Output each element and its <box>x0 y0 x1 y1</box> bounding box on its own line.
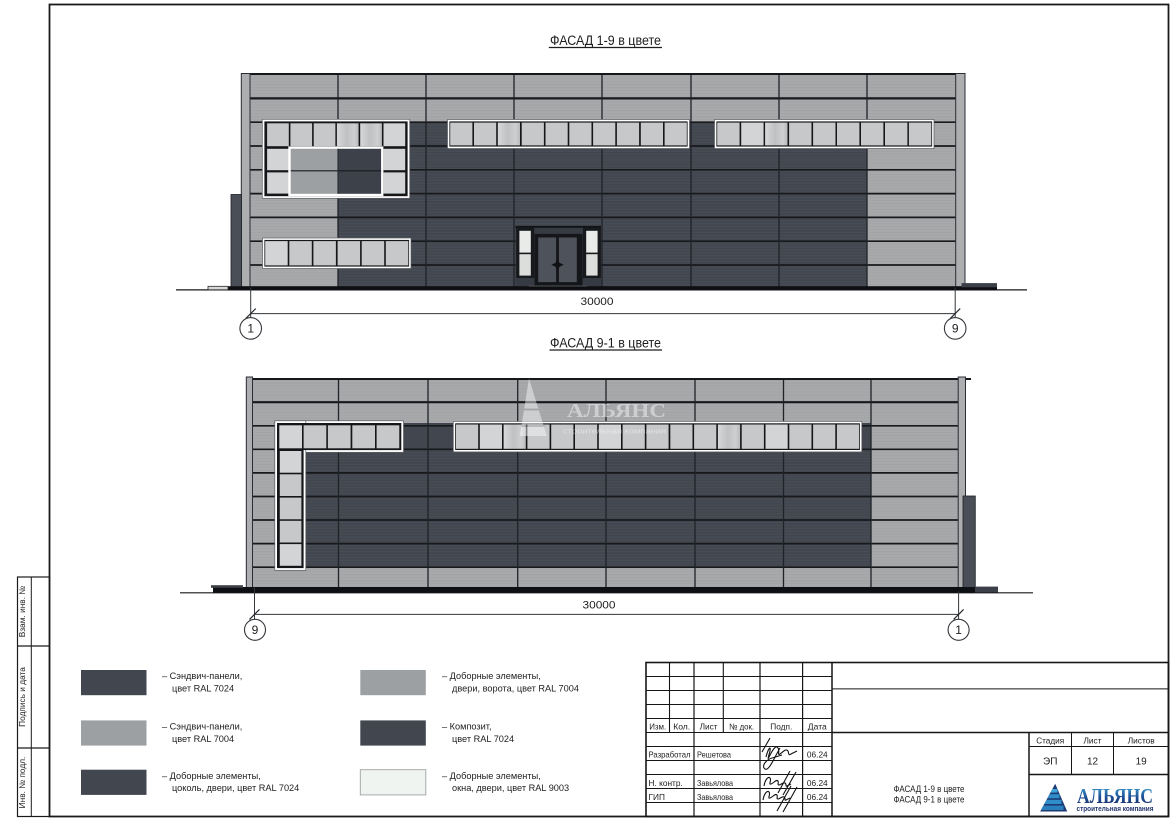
svg-text:1: 1 <box>247 322 254 336</box>
svg-text:Листов: Листов <box>1128 736 1155 746</box>
svg-text:строительная компания: строительная компания <box>563 427 666 436</box>
svg-text:30000: 30000 <box>581 296 614 308</box>
svg-text:– Доборные элементы,: – Доборные элементы, <box>442 771 541 781</box>
svg-text:Решетова: Решетова <box>697 750 731 760</box>
svg-text:Лист: Лист <box>700 722 718 732</box>
svg-text:19: 19 <box>1136 757 1148 768</box>
svg-text:Изм.: Изм. <box>649 722 666 732</box>
svg-text:двери, ворота, цвет RAL 7004: двери, ворота, цвет RAL 7004 <box>452 683 579 693</box>
svg-text:Лист: Лист <box>1084 736 1102 746</box>
svg-text:– Сэндвич-панели,: – Сэндвич-панели, <box>162 671 242 681</box>
svg-text:ФАСАД 9-1 в цвете: ФАСАД 9-1 в цвете <box>550 335 661 350</box>
svg-text:№ док.: № док. <box>729 722 754 732</box>
svg-text:цоколь, двери, цвет RAL 7024: цоколь, двери, цвет RAL 7024 <box>172 783 299 793</box>
svg-text:Стадия: Стадия <box>1036 736 1064 746</box>
svg-text:Подп.: Подп. <box>770 722 792 732</box>
svg-text:9: 9 <box>252 623 259 637</box>
svg-text:цвет RAL 7004: цвет RAL 7004 <box>172 734 234 744</box>
svg-text:ЭП: ЭП <box>1043 757 1057 768</box>
svg-text:06.24: 06.24 <box>807 792 828 802</box>
svg-text:строительная компания: строительная компания <box>1077 804 1154 813</box>
svg-text:– Композит,: – Композит, <box>442 722 492 732</box>
svg-text:Взам. инв. №: Взам. инв. № <box>17 586 27 638</box>
svg-text:цвет RAL 7024: цвет RAL 7024 <box>172 683 234 693</box>
svg-text:Разработал: Разработал <box>649 750 691 760</box>
svg-text:06.24: 06.24 <box>807 778 828 788</box>
svg-text:Завьялова: Завьялова <box>697 792 733 802</box>
svg-text:ФАСАД 9-1 в цвете: ФАСАД 9-1 в цвете <box>894 794 965 804</box>
svg-text:Завьялова: Завьялова <box>697 778 733 788</box>
svg-text:цвет RAL 7024: цвет RAL 7024 <box>452 734 514 744</box>
svg-text:ГИП: ГИП <box>649 792 665 802</box>
svg-text:1: 1 <box>955 623 962 637</box>
svg-text:ФАСАД 1-9 в цвете: ФАСАД 1-9 в цвете <box>894 784 965 794</box>
svg-text:9: 9 <box>952 322 959 336</box>
svg-text:12: 12 <box>1087 757 1099 768</box>
svg-text:– Доборные элементы,: – Доборные элементы, <box>442 671 541 681</box>
svg-text:Подпись и дата: Подпись и дата <box>17 667 27 727</box>
svg-text:30000: 30000 <box>583 599 616 611</box>
svg-text:Дата: Дата <box>808 722 827 732</box>
svg-text:АЛЬЯНС: АЛЬЯНС <box>567 400 666 422</box>
svg-text:06.24: 06.24 <box>807 750 828 760</box>
svg-text:Н. контр.: Н. контр. <box>649 778 683 788</box>
svg-text:ФАСАД 1-9 в цвете: ФАСАД 1-9 в цвете <box>550 33 661 48</box>
svg-text:окна, двери, цвет RAL 9003: окна, двери, цвет RAL 9003 <box>452 783 569 793</box>
svg-text:– Доборные элементы,: – Доборные элементы, <box>162 771 261 781</box>
svg-text:– Сэндвич-панели,: – Сэндвич-панели, <box>162 722 242 732</box>
svg-text:Инв. № подл.: Инв. № подл. <box>17 757 27 809</box>
svg-text:Кол.: Кол. <box>673 722 690 732</box>
